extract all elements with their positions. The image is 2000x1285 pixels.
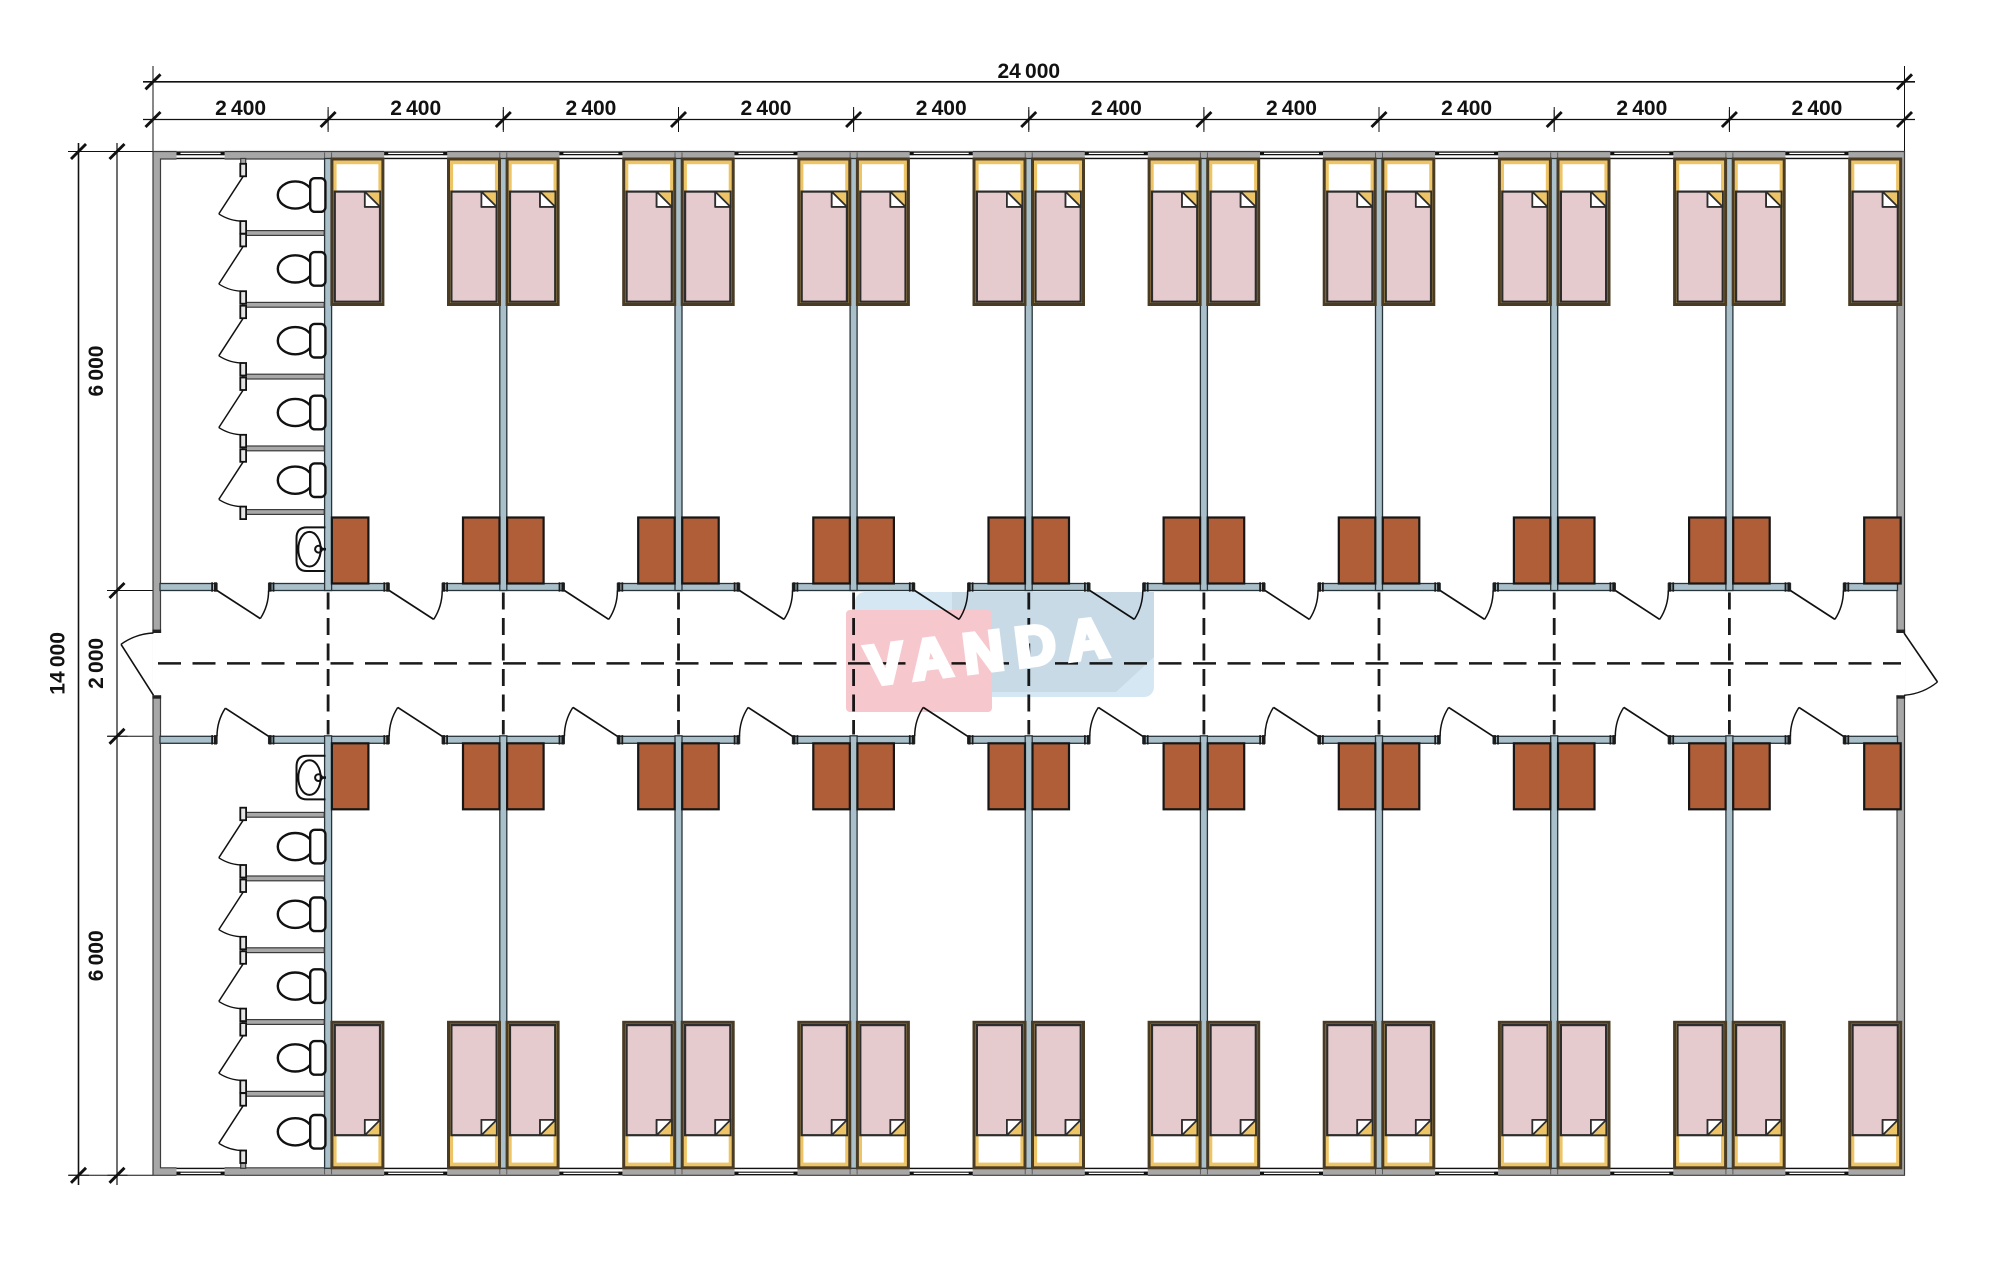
- svg-text:2 400: 2 400: [1441, 97, 1492, 120]
- svg-text:6 000: 6 000: [85, 930, 108, 981]
- svg-text:2 400: 2 400: [1266, 97, 1317, 120]
- svg-text:14 000: 14 000: [47, 632, 70, 695]
- svg-text:2 000: 2 000: [85, 638, 108, 689]
- svg-text:2 400: 2 400: [916, 97, 967, 120]
- svg-text:2 400: 2 400: [741, 97, 792, 120]
- svg-text:6 000: 6 000: [85, 346, 108, 397]
- svg-text:2 400: 2 400: [1616, 97, 1667, 120]
- svg-text:2 400: 2 400: [390, 97, 441, 120]
- svg-text:2 400: 2 400: [215, 97, 266, 120]
- svg-text:2 400: 2 400: [565, 97, 616, 120]
- svg-text:2 400: 2 400: [1791, 97, 1842, 120]
- svg-text:2 400: 2 400: [1091, 97, 1142, 120]
- svg-text:24 000: 24 000: [997, 60, 1060, 83]
